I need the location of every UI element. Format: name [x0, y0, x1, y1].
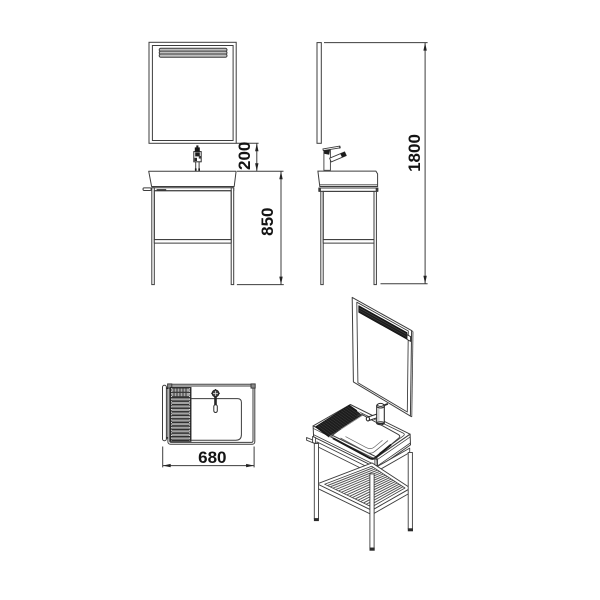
svg-text:1800: 1800: [405, 134, 424, 172]
svg-text:850: 850: [258, 208, 277, 236]
svg-text:200: 200: [235, 142, 254, 170]
svg-text:680: 680: [198, 448, 226, 467]
